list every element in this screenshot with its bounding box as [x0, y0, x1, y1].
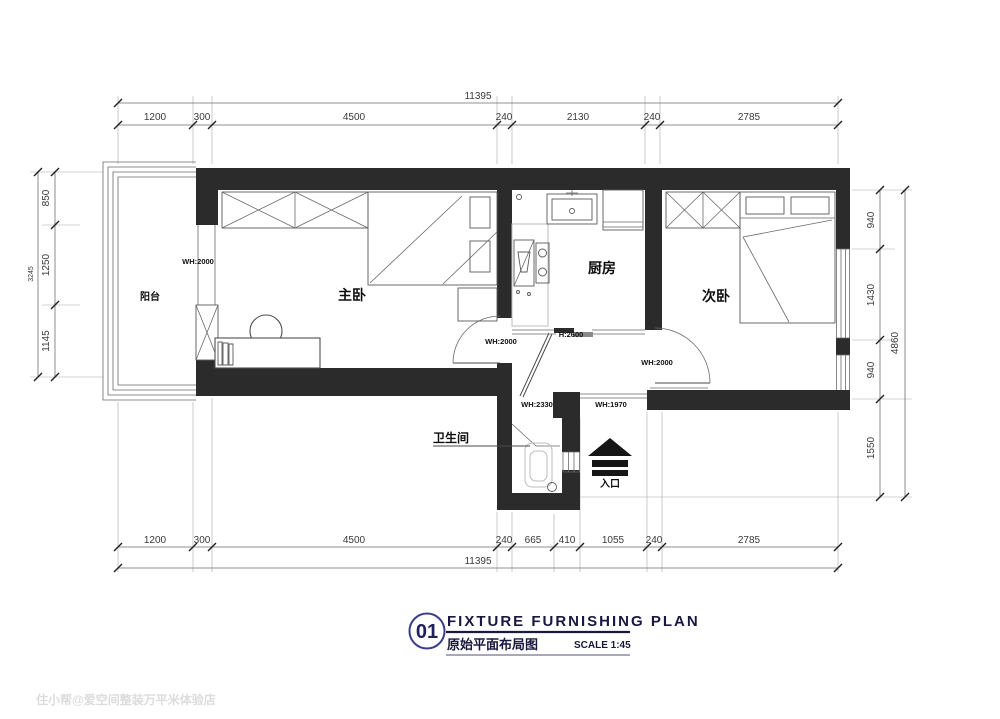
- label-bathroom: 卫生间: [433, 430, 469, 445]
- wall-bathroom-bottom: [497, 493, 580, 510]
- dim-top-total: 11395: [464, 91, 492, 102]
- window-right-wall-1: [836, 249, 850, 338]
- wall-bottom-master: [196, 368, 512, 396]
- dim-bottom-seg-7: 240: [646, 535, 663, 546]
- window-right-wall-2: [836, 355, 850, 390]
- dim-left-seg-2: 1145: [41, 330, 52, 352]
- dim-bottom-seg-5: 410: [559, 535, 576, 546]
- dim-right-total: 4860: [890, 331, 901, 354]
- dim-left-seg-1: 1250: [41, 253, 52, 276]
- dim-right-seg-0: 940: [866, 211, 877, 228]
- dim-top-seg-2: 4500: [343, 112, 366, 123]
- wall-bathroom-left: [497, 363, 512, 510]
- dim-top-seg-1: 300: [194, 112, 211, 123]
- dim-top-seg-5: 240: [644, 112, 661, 123]
- floor-plan-drawing: 11395 1200 300 4500 240 2130 240 2785 12…: [0, 0, 1000, 719]
- dim-bottom-seg-3: 240: [496, 535, 513, 546]
- dim-left-total: 3245: [28, 266, 35, 282]
- dim-bottom-seg-2: 4500: [343, 535, 366, 546]
- title-scale: SCALE 1:45: [574, 640, 631, 651]
- watermark: 住小帮@爱空间整装万平米体验店: [36, 692, 216, 707]
- dim-bottom-seg-4: 665: [525, 535, 542, 546]
- wall-left-upper: [196, 190, 218, 225]
- label-master-bedroom: 主卧: [338, 287, 366, 303]
- dim-bottom-seg-1: 300: [194, 535, 211, 546]
- wall-bath-southeast: [553, 392, 580, 418]
- label-entrance: 入口: [600, 478, 620, 490]
- label-second-bedroom: 次卧: [702, 288, 730, 304]
- wall-bottom-bedroom2: [647, 390, 850, 410]
- wall-kitchen-bedroom2: [645, 190, 662, 330]
- dim-right-seg-3: 1550: [866, 436, 877, 459]
- wall-bathroom-right-a: [562, 418, 580, 452]
- label-kitchen: 厨房: [588, 260, 616, 276]
- dim-left-seg-0: 850: [41, 189, 52, 206]
- dim-bottom-seg-6: 1055: [602, 535, 625, 546]
- label-balcony: 阳台: [140, 290, 160, 303]
- dim-top-seg-6: 2785: [738, 112, 761, 123]
- floor-plan-sheet: 11395 1200 300 4500 240 2130 240 2785 12…: [0, 0, 1000, 719]
- dim-top-seg-3: 240: [496, 112, 513, 123]
- wall-bathroom-right-b: [562, 470, 580, 493]
- label-master-door-wh: WH:2000: [485, 337, 517, 346]
- title-chinese: 原始平面布局图: [447, 637, 538, 652]
- title-number: 01: [416, 621, 438, 643]
- dim-bottom-total: 11395: [464, 556, 492, 567]
- wall-top: [196, 168, 850, 190]
- dim-top-seg-0: 1200: [144, 112, 167, 123]
- dim-right-seg-1: 1430: [866, 283, 877, 306]
- label-hall-height: H:2600: [559, 330, 584, 339]
- label-balcony-door-wh: WH:2000: [182, 257, 214, 266]
- label-bath-door-wh: WH:2330: [521, 400, 553, 409]
- wall-master-kitchen: [497, 190, 512, 318]
- title-english: FIXTURE FURNISHING PLAN: [447, 613, 700, 630]
- dim-right-seg-2: 940: [866, 361, 877, 378]
- dim-top-seg-4: 2130: [567, 112, 590, 123]
- label-entry-wh: WH:1970: [595, 400, 627, 409]
- dim-bottom-seg-8: 2785: [738, 535, 761, 546]
- label-second-door-wh: WH:2000: [641, 358, 673, 367]
- dim-bottom-seg-0: 1200: [144, 535, 167, 546]
